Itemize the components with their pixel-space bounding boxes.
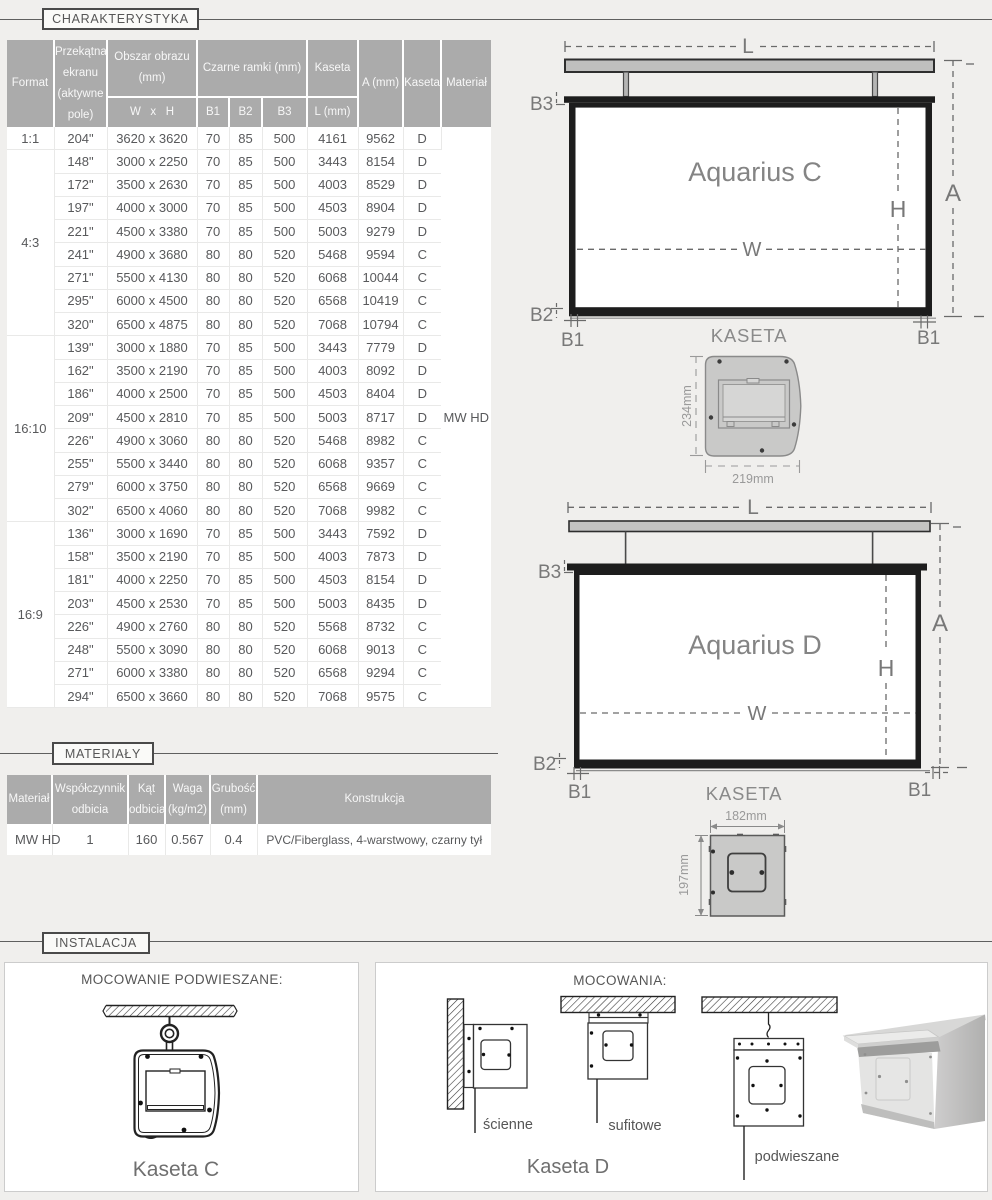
svg-text:Aquarius C: Aquarius C xyxy=(688,157,822,187)
svg-text:B1: B1 xyxy=(561,330,584,351)
svg-text:podwieszane: podwieszane xyxy=(755,1149,840,1165)
svg-text:197mm: 197mm xyxy=(677,854,691,896)
svg-text:B1: B1 xyxy=(917,328,940,349)
svg-text:A: A xyxy=(945,180,961,207)
svg-text:KASETA: KASETA xyxy=(706,783,782,804)
svg-text:H: H xyxy=(878,655,895,681)
svg-text:KASETA: KASETA xyxy=(711,325,787,346)
svg-text:234mm: 234mm xyxy=(680,385,694,427)
svg-text:219mm: 219mm xyxy=(732,472,774,486)
svg-text:182mm: 182mm xyxy=(725,809,767,823)
svg-text:W: W xyxy=(748,703,767,725)
svg-text:ścienne: ścienne xyxy=(483,1117,533,1133)
svg-text:Kaseta D: Kaseta D xyxy=(527,1156,609,1178)
svg-text:A: A xyxy=(932,610,948,637)
svg-text:B3: B3 xyxy=(538,562,561,583)
svg-text:MOCOWANIA:: MOCOWANIA: xyxy=(573,973,667,988)
svg-text:B1: B1 xyxy=(568,782,591,803)
svg-text:sufitowe: sufitowe xyxy=(608,1118,661,1134)
svg-text:H: H xyxy=(890,196,907,222)
svg-text:Aquarius D: Aquarius D xyxy=(688,630,822,660)
svg-text:B1: B1 xyxy=(908,780,931,801)
svg-text:MOCOWANIE PODWIESZANE:: MOCOWANIE PODWIESZANE: xyxy=(81,972,283,987)
svg-text:B2: B2 xyxy=(533,754,556,775)
svg-text:L: L xyxy=(747,496,759,519)
svg-text:B3: B3 xyxy=(530,94,553,115)
svg-text:L: L xyxy=(742,35,754,58)
svg-text:B2: B2 xyxy=(530,305,553,326)
svg-text:W: W xyxy=(743,239,762,261)
svg-text:Kaseta C: Kaseta C xyxy=(133,1158,219,1181)
